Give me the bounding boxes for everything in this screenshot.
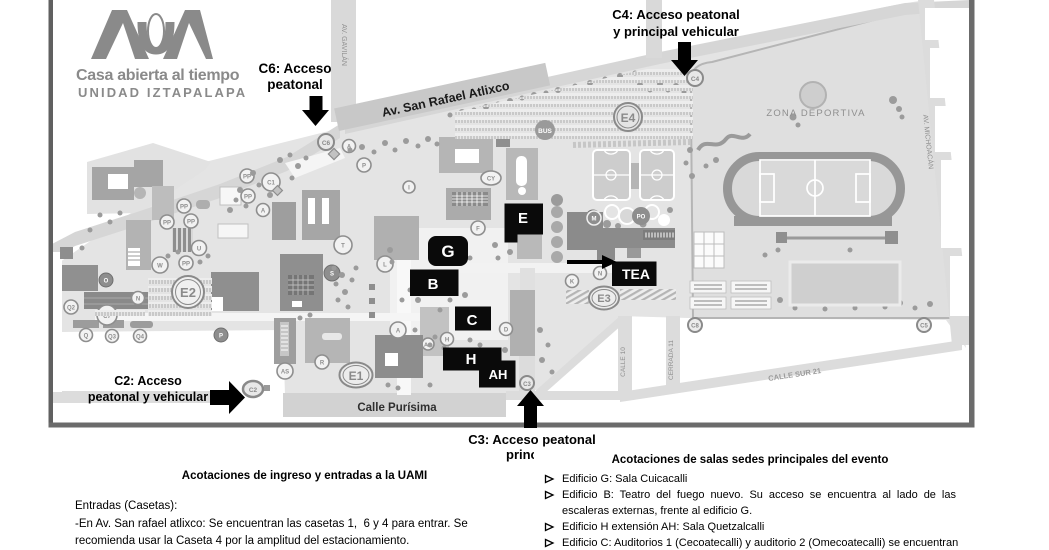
- svg-text:AH: AH: [489, 367, 508, 382]
- svg-text:E: E: [518, 210, 528, 227]
- svg-text:AV. GAVILÁN: AV. GAVILÁN: [340, 24, 349, 66]
- svg-text:CERRADA 11: CERRADA 11: [668, 340, 675, 380]
- svg-text:C8: C8: [691, 324, 699, 330]
- svg-text:A: A: [396, 329, 401, 335]
- svg-text:Q: Q: [84, 334, 89, 340]
- svg-text:O: O: [104, 279, 109, 285]
- svg-text:H: H: [466, 351, 477, 368]
- svg-text:C3: Acceso peatonal: C3: Acceso peatonal: [468, 432, 595, 447]
- svg-text:C4: Acceso peatonal: C4: Acceso peatonal: [612, 7, 739, 22]
- svg-text:C1: C1: [267, 181, 275, 187]
- svg-text:PP: PP: [244, 195, 252, 201]
- svg-text:D: D: [504, 328, 509, 334]
- svg-text:C2: Acceso: C2: Acceso: [114, 374, 182, 388]
- svg-text:G: G: [441, 242, 454, 261]
- svg-text:B: B: [428, 276, 439, 293]
- svg-text:UNIDAD IZTAPALAPA: UNIDAD IZTAPALAPA: [78, 85, 247, 100]
- svg-text:W: W: [157, 264, 163, 270]
- svg-text:R: R: [320, 361, 325, 367]
- svg-text:C: C: [467, 312, 478, 329]
- svg-text:L: L: [383, 263, 387, 269]
- svg-text:K: K: [570, 280, 575, 286]
- svg-text:C6: C6: [322, 140, 331, 147]
- svg-text:Casa abierta al tiempo: Casa abierta al tiempo: [76, 67, 240, 84]
- svg-text:U: U: [197, 247, 201, 253]
- svg-text:E3: E3: [597, 293, 610, 305]
- svg-text:A: A: [261, 209, 266, 215]
- svg-text:E2: E2: [180, 285, 196, 300]
- svg-text:peatonal y vehicular: peatonal y vehicular: [88, 390, 208, 404]
- svg-text:PP: PP: [163, 221, 171, 227]
- svg-text:Q3: Q3: [108, 335, 117, 341]
- svg-text:T: T: [341, 244, 345, 250]
- svg-text:CY: CY: [487, 177, 495, 183]
- svg-text:F: F: [476, 227, 480, 233]
- svg-text:Q4: Q4: [136, 335, 145, 341]
- svg-text:N: N: [598, 272, 602, 278]
- svg-text:C5: C5: [920, 324, 928, 330]
- svg-text:CALLE 10: CALLE 10: [620, 347, 627, 377]
- svg-text:y principal vehicular: y principal vehicular: [613, 24, 739, 39]
- svg-text:PP: PP: [182, 262, 190, 268]
- svg-text:princ: princ: [506, 447, 538, 462]
- svg-text:peatonal: peatonal: [267, 77, 323, 92]
- svg-text:AS: AS: [281, 370, 289, 376]
- svg-text:PP: PP: [180, 205, 188, 211]
- svg-text:PO: PO: [637, 215, 646, 221]
- svg-text:C2: C2: [249, 387, 258, 394]
- svg-text:BUS: BUS: [538, 128, 552, 135]
- svg-text:TEA: TEA: [622, 266, 650, 282]
- svg-text:C6: Acceso: C6: Acceso: [258, 61, 331, 76]
- svg-text:E1: E1: [349, 369, 364, 383]
- svg-text:S: S: [330, 272, 334, 278]
- svg-text:PP: PP: [243, 175, 251, 181]
- svg-text:M: M: [592, 217, 597, 223]
- svg-text:C3: C3: [523, 382, 531, 388]
- svg-text:P: P: [219, 334, 223, 340]
- svg-text:Calle Purísima: Calle Purísima: [357, 402, 437, 414]
- svg-text:ZONA DEPORTIVA: ZONA DEPORTIVA: [766, 108, 865, 119]
- svg-text:E4: E4: [621, 111, 636, 125]
- svg-text:Q2: Q2: [67, 306, 76, 312]
- svg-text:H: H: [445, 338, 449, 344]
- svg-text:C4: C4: [691, 76, 700, 83]
- svg-text:N: N: [136, 297, 140, 303]
- svg-text:PP: PP: [187, 220, 195, 226]
- svg-text:P: P: [362, 164, 366, 170]
